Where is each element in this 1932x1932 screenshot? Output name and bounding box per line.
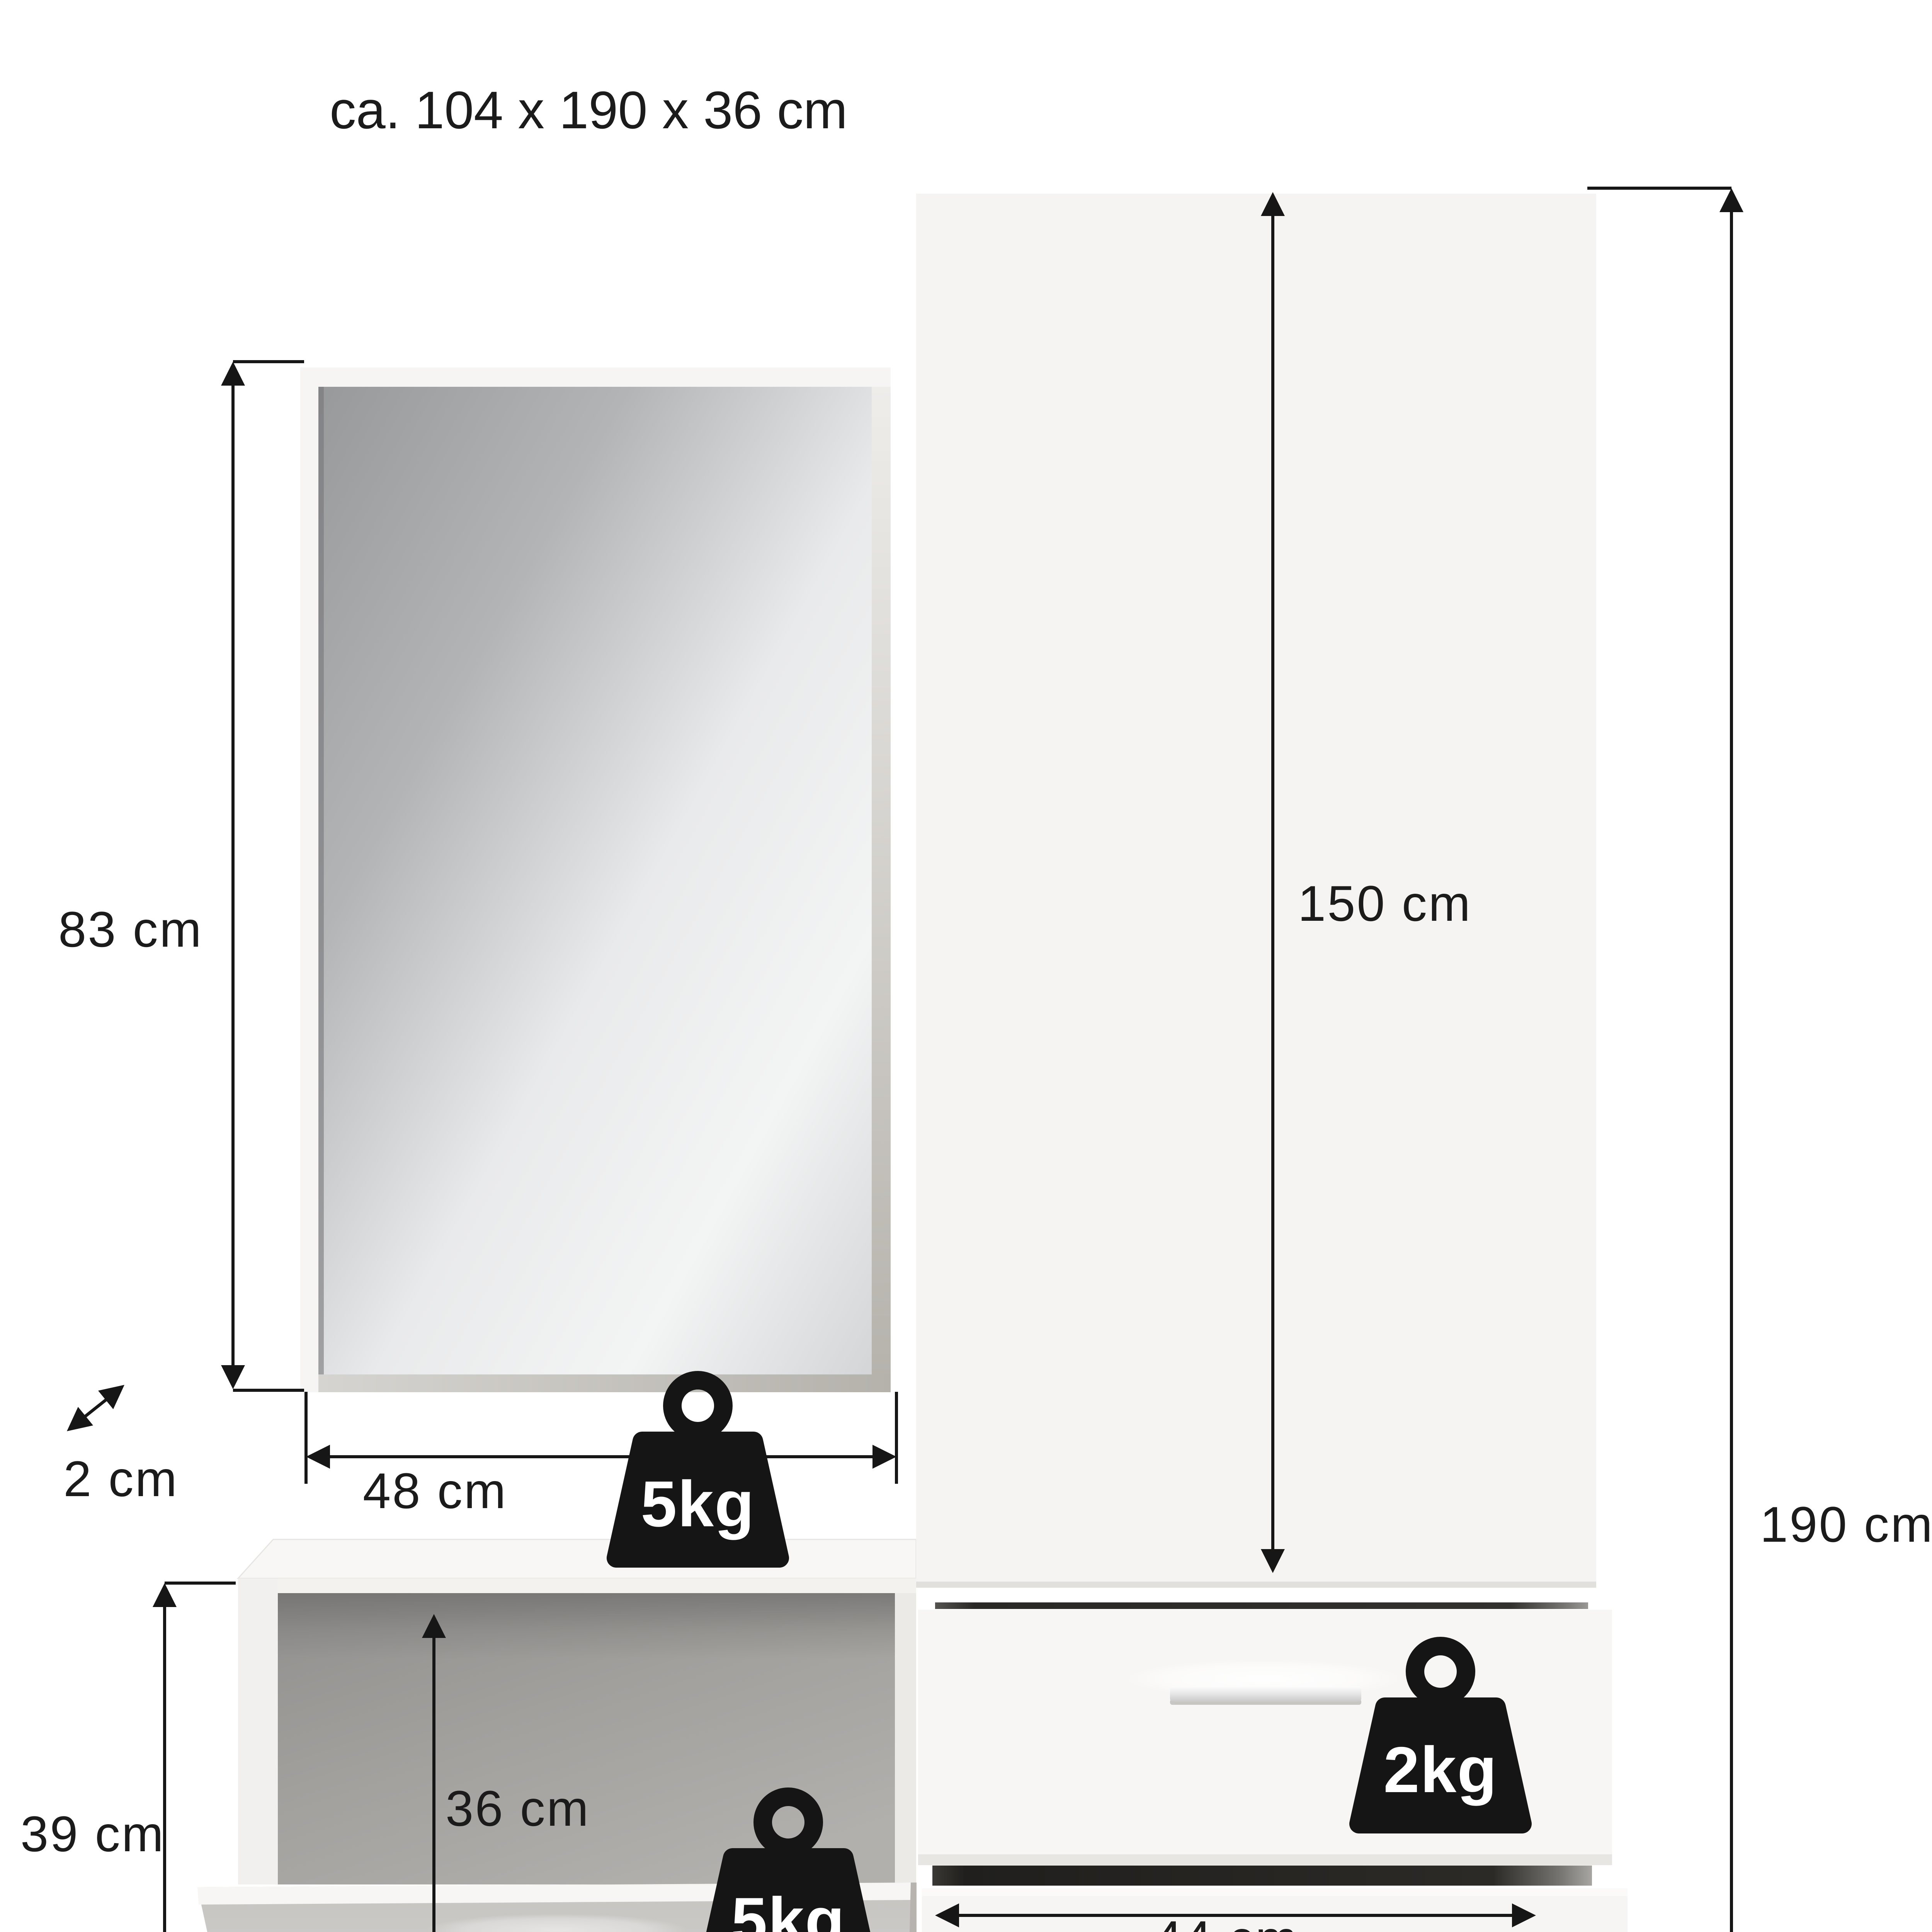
svg-text:44 cm: 44 cm [1154, 1910, 1299, 1932]
svg-text:39 cm: 39 cm [20, 1806, 165, 1862]
svg-text:2kg: 2kg [1383, 1733, 1498, 1806]
svg-text:150 cm: 150 cm [1298, 875, 1472, 932]
svg-text:ca. 104 x 190 x 36 cm: ca. 104 x 190 x 36 cm [330, 81, 847, 140]
svg-text:48 cm: 48 cm [363, 1463, 507, 1519]
svg-text:83 cm: 83 cm [58, 901, 203, 957]
svg-text:2 cm: 2 cm [63, 1451, 179, 1507]
svg-text:36 cm: 36 cm [446, 1780, 590, 1837]
svg-text:5kg: 5kg [641, 1468, 755, 1540]
svg-text:5kg: 5kg [731, 1884, 845, 1932]
svg-text:190 cm: 190 cm [1760, 1496, 1932, 1553]
